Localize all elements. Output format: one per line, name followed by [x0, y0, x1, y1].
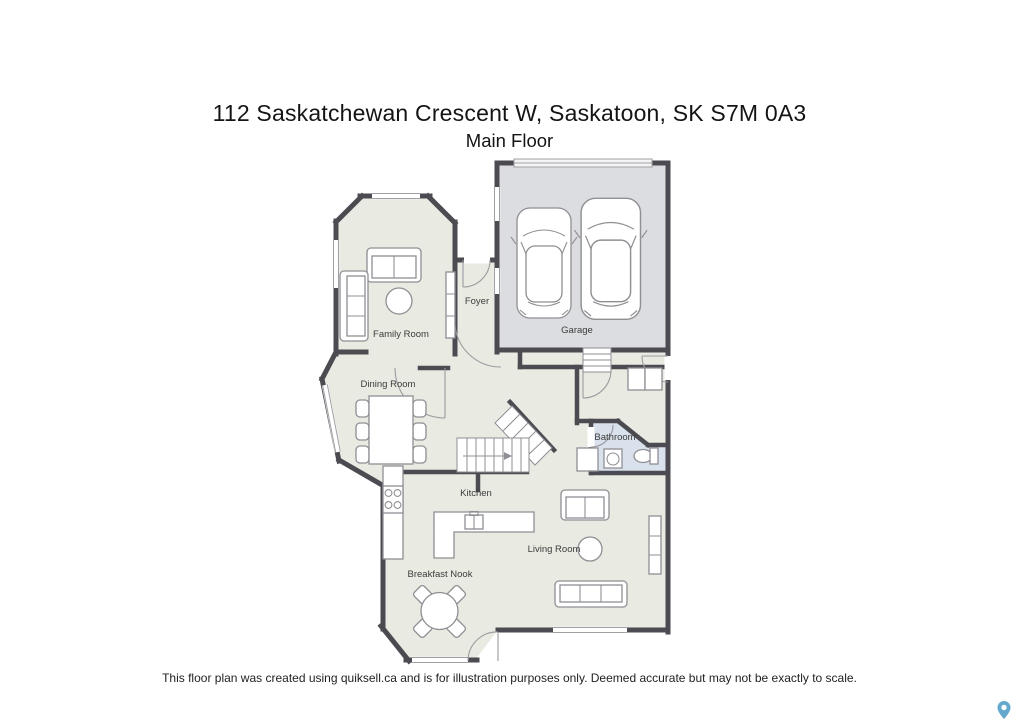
dining-table-icon [356, 396, 426, 464]
family-room-window-top [372, 194, 420, 199]
living-round-table-icon [578, 537, 602, 561]
garage-window-upper [495, 187, 500, 221]
living-sofa-icon [555, 581, 627, 607]
garage-window-lower [495, 268, 500, 294]
round-coffee-table-icon [386, 288, 412, 314]
room-label-garage: Garage [561, 325, 593, 336]
breakfast-nook-window [412, 658, 468, 663]
car-icon-left [511, 208, 577, 318]
car-icon-right [575, 198, 648, 319]
family-room-window-left [334, 240, 339, 288]
room-label-family-room: Family Room [373, 329, 429, 340]
fireplace-media-unit-icon [446, 272, 455, 338]
room-label-dining-room: Dining Room [361, 379, 416, 390]
sofa-icon [340, 271, 368, 341]
media-console-icon [649, 516, 661, 574]
living-loveseat-icon [561, 490, 609, 520]
disclaimer-text: This floor plan was created using quikse… [162, 671, 857, 685]
room-label-bathroom: Bathroom [594, 432, 635, 443]
floor-plan-drawing: Foyer Family Room Garage Dining Room Bat… [0, 0, 1019, 720]
toilet-icon [634, 448, 658, 464]
garage-steps [583, 348, 611, 372]
floor-plan-page: 112 Saskatchewan Crescent W, Saskatoon, … [0, 0, 1019, 720]
room-label-breakfast-nook: Breakfast Nook [408, 569, 473, 580]
bathroom-closet-icon [577, 448, 598, 471]
footer: This floor plan was created using quikse… [0, 671, 1019, 685]
room-label-kitchen: Kitchen [460, 488, 492, 499]
stove-icon [383, 486, 403, 513]
garage-door-panel [514, 159, 652, 167]
bathroom-sink-icon [604, 449, 622, 468]
room-label-living-room: Living Room [528, 544, 581, 555]
living-room-window [553, 628, 627, 633]
map-pin-icon[interactable] [996, 700, 1012, 720]
hall-cabinet-icon [628, 368, 662, 390]
room-label-foyer: Foyer [465, 296, 489, 307]
loveseat-icon [367, 248, 421, 282]
